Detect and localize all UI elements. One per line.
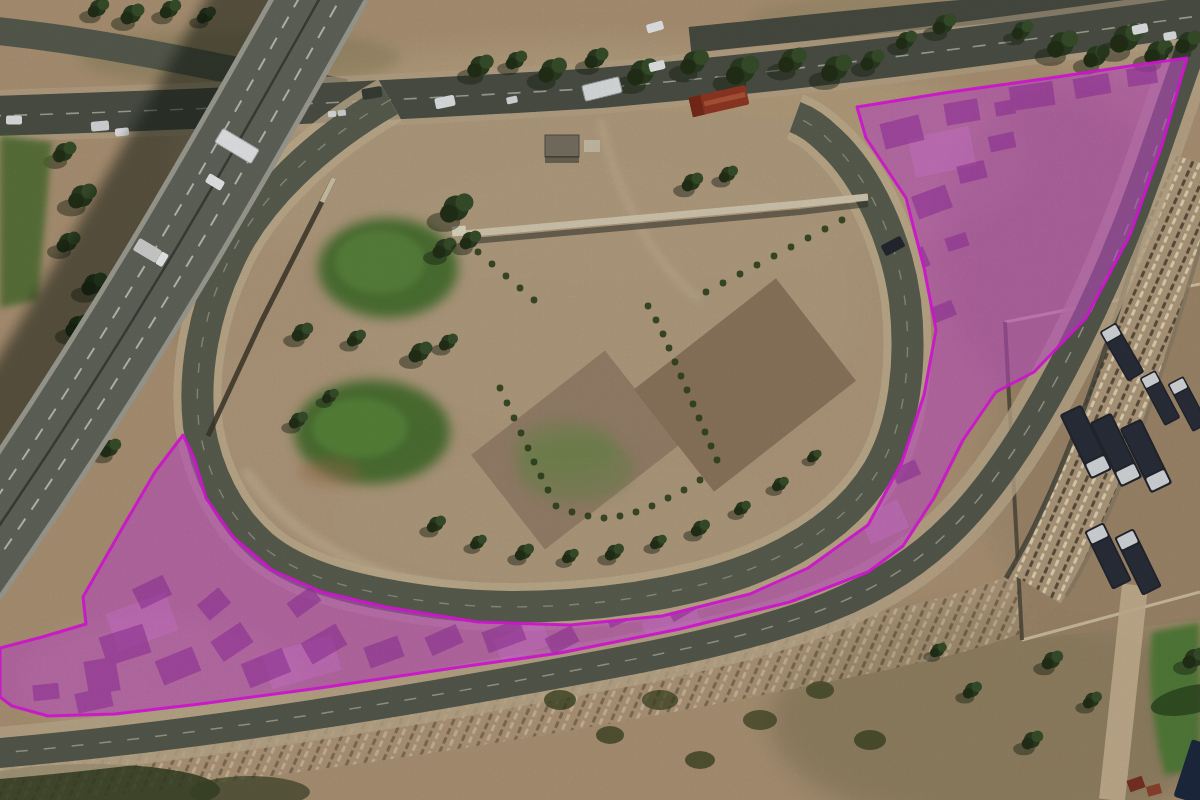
photo-grain [0, 0, 1200, 800]
aerial-photo [0, 0, 1200, 800]
satellite-map-canvas[interactable] [0, 0, 1200, 800]
